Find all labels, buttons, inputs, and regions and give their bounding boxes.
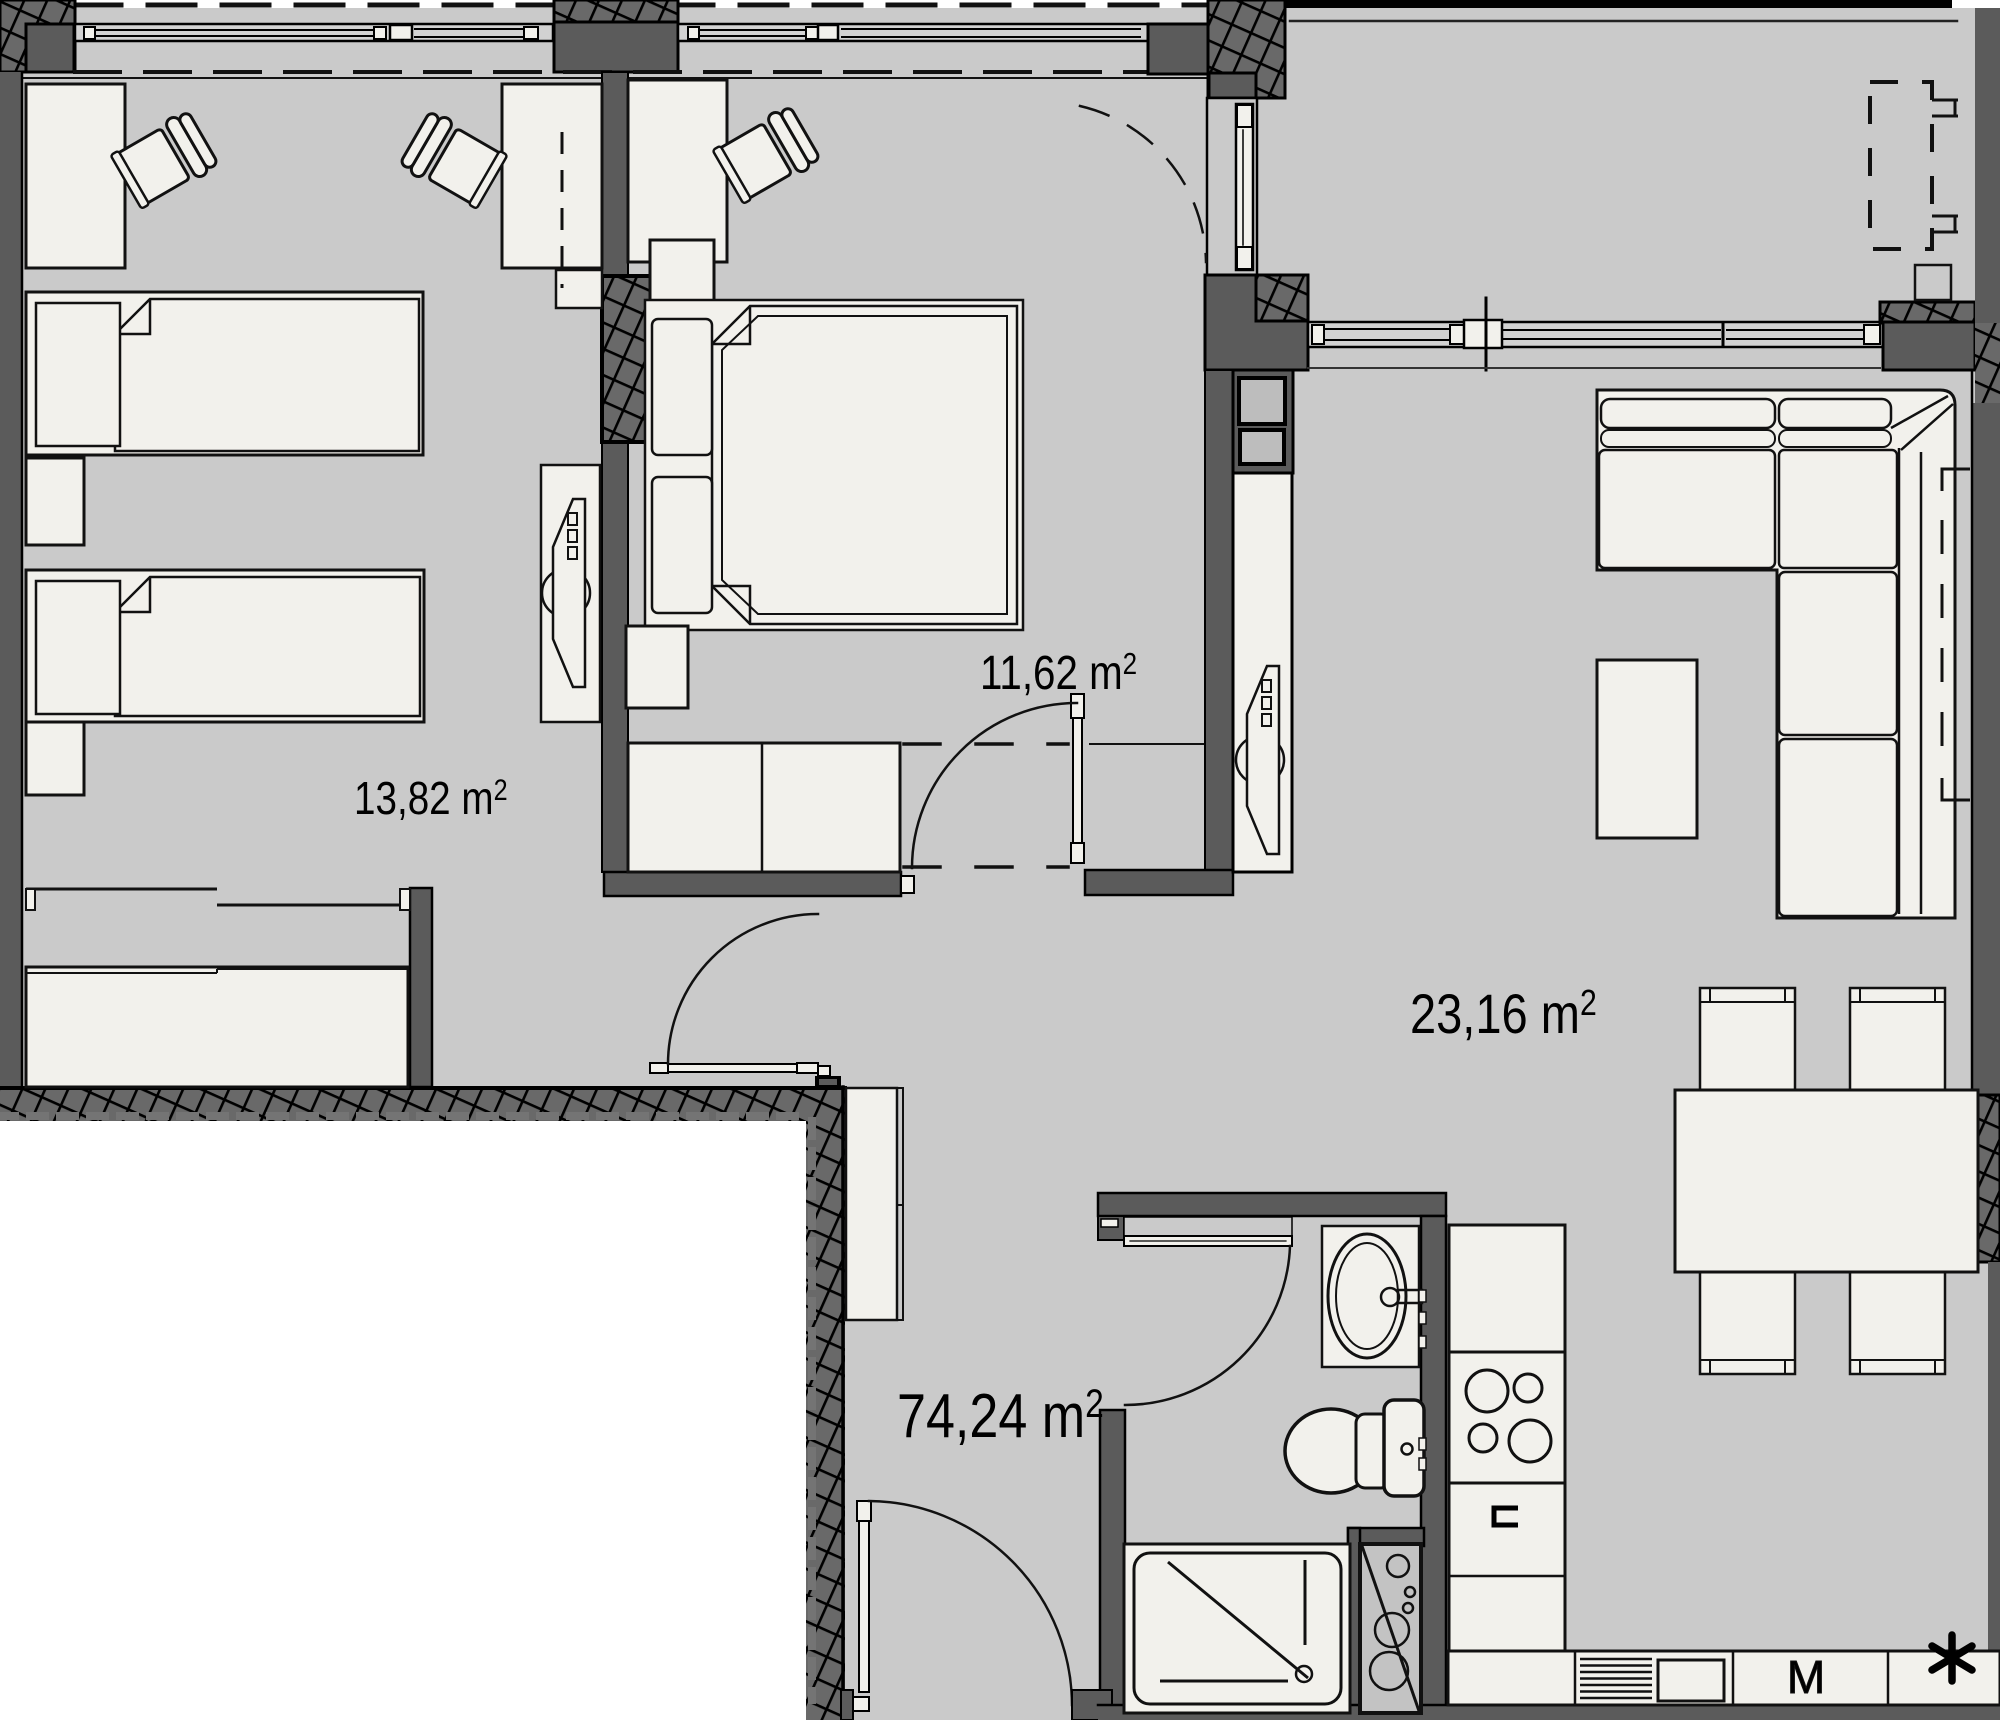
svg-text:11,62 m2: 11,62 m2 bbox=[980, 647, 1137, 700]
svg-text:13,82 m2: 13,82 m2 bbox=[354, 773, 508, 824]
svg-text:M: M bbox=[1787, 1651, 1825, 1703]
svg-text:23,16 m2: 23,16 m2 bbox=[1410, 982, 1597, 1045]
svg-text:74,24 m2: 74,24 m2 bbox=[897, 1381, 1104, 1451]
